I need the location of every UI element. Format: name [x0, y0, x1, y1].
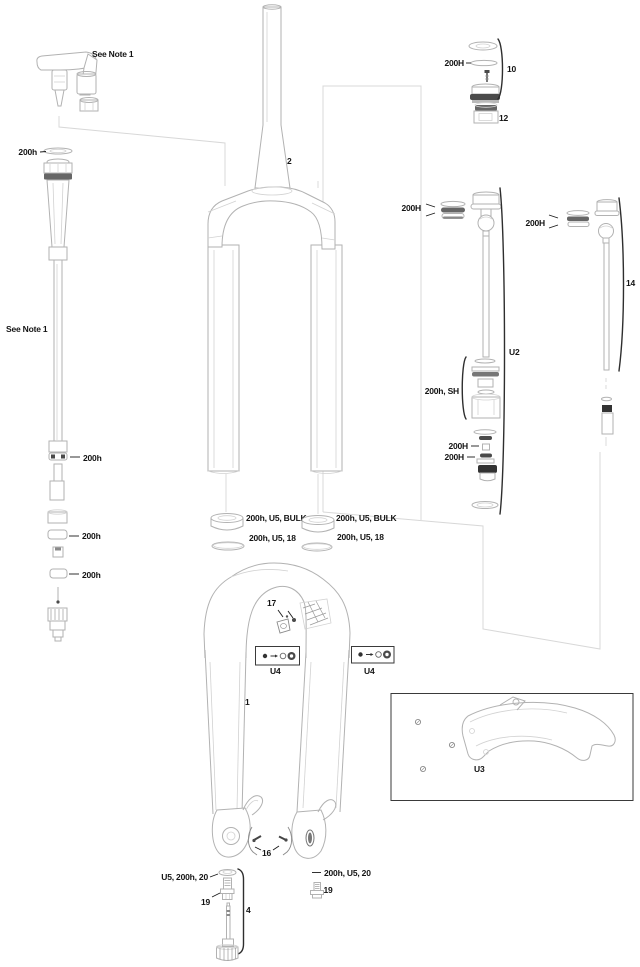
shaft-bolt-group-right: 200h, U5, 20 19 [311, 868, 372, 898]
bolt-kit-box-right: U4 [352, 647, 395, 677]
callout-damper-small-b: 200H [444, 452, 464, 462]
steerer-tube: 2 [255, 5, 292, 188]
callout-rebound-group: 4 [246, 905, 251, 915]
callout-see-note-1-left: See Note 1 [6, 324, 48, 334]
callout-foam-ring-right: 200h, U5, 18 [337, 532, 384, 542]
bolt-kit-box-left: U4 [256, 647, 300, 677]
callout-lowers: 1 [245, 697, 250, 707]
callout-bolt-right: 19 [324, 885, 334, 895]
callout-shaft-ring-b: 200h [82, 531, 101, 541]
dropout-right [292, 800, 336, 859]
callout-piston-kit: 200h, SH [425, 386, 459, 396]
callout-washer-right: 200h, U5, 20 [324, 868, 371, 878]
callout-topcap-seal: 200H [444, 58, 464, 68]
remote-lever-assembly: See Note 1 [37, 49, 134, 111]
callout-bolt-kit-right: U4 [364, 666, 375, 676]
callout-dust-seal-right: 200h, U5, BULK [336, 513, 398, 523]
callout-dust-seal-left: 200h, U5, BULK [246, 513, 308, 523]
fender-kit-box-u3: U3 [391, 694, 633, 801]
callout-bolt-kit-left: U4 [270, 666, 281, 676]
callout-steerer: 2 [287, 156, 292, 166]
foam-ring-left: 200h, U5, 18 [212, 533, 296, 550]
upper-tubes [208, 245, 342, 474]
callout-topcap-group: 10 [507, 64, 517, 74]
top-cap-kit-10: 200H 10 [444, 39, 516, 103]
dust-seal-left: 200h, U5, BULK [211, 513, 308, 530]
callout-damper-small-a: 200H [448, 441, 468, 451]
exploded-fork-diagram: See Note 1 200h See Note 1 200h 200h [0, 0, 640, 967]
callout-damper-seal: 200H [401, 203, 421, 213]
lower-legs: 1 [204, 563, 350, 814]
spring-shaft-assembly-14: 200H 14 [525, 198, 635, 446]
foam-ring-right: 200h, U5, 18 [302, 532, 384, 551]
callout-see-note-1-top: See Note 1 [92, 49, 134, 59]
callout-damper-group: U2 [509, 347, 520, 357]
crown [208, 187, 335, 249]
rebound-adjuster-group: U5, 200h, 20 19 4 [161, 869, 251, 961]
callout-topcap-knob: 12 [499, 113, 509, 123]
dust-seal-right: 200h, U5, BULK [302, 513, 398, 532]
callout-ring-top-left: 200h [18, 147, 37, 157]
callout-foam-ring-left: 200h, U5, 18 [249, 533, 296, 543]
air-shaft-assembly: 200h See Note 1 200h 200h 200h [6, 147, 102, 641]
adjuster-knob-12: 12 [474, 103, 509, 123]
diagram-canvas: See Note 1 200h See Note 1 200h 200h [0, 0, 640, 967]
damper-assembly-u2: 200H 200h, SH 200H 200H [401, 188, 519, 514]
callout-spring-group: 14 [626, 278, 636, 288]
callout-dropout-screws: 16 [262, 848, 272, 858]
callout-spring-seal: 200H [525, 218, 545, 228]
callout-washer-left: U5, 200h, 20 [161, 872, 208, 882]
callout-fender-kit: U3 [474, 764, 485, 774]
callout-shaft-ring-c: 200h [82, 570, 101, 580]
dropout-screw-kit-16: 16 [248, 827, 291, 858]
callout-bolt-left: 19 [201, 897, 211, 907]
arch-screw-kit-17: 17 [267, 598, 296, 633]
callout-shaft-ring-a: 200h [83, 453, 102, 463]
callout-arch-screws: 17 [267, 598, 277, 608]
